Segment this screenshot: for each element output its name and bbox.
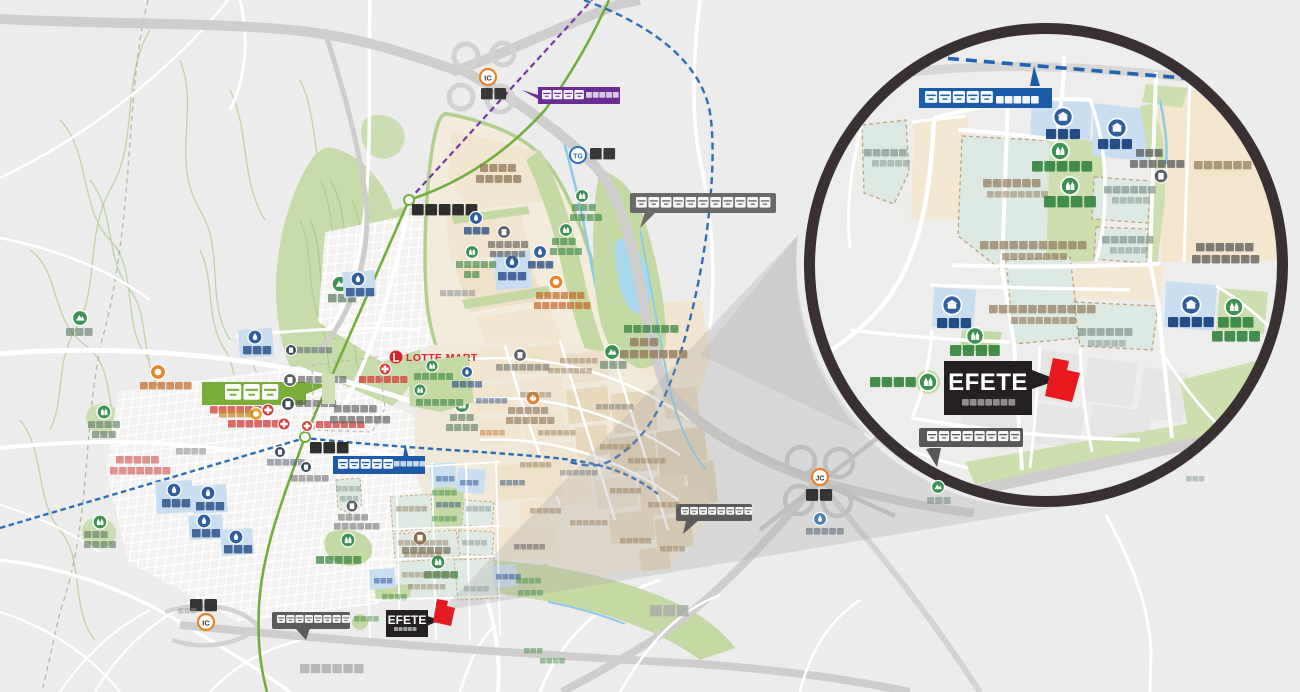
svg-text:TG: TG — [573, 154, 583, 161]
svg-text:EFETE: EFETE — [388, 613, 427, 627]
svg-text:IC: IC — [484, 74, 492, 83]
svg-text:EFETE: EFETE — [948, 369, 1028, 396]
svg-text:JC: JC — [816, 476, 825, 483]
svg-text:IC: IC — [202, 619, 210, 628]
